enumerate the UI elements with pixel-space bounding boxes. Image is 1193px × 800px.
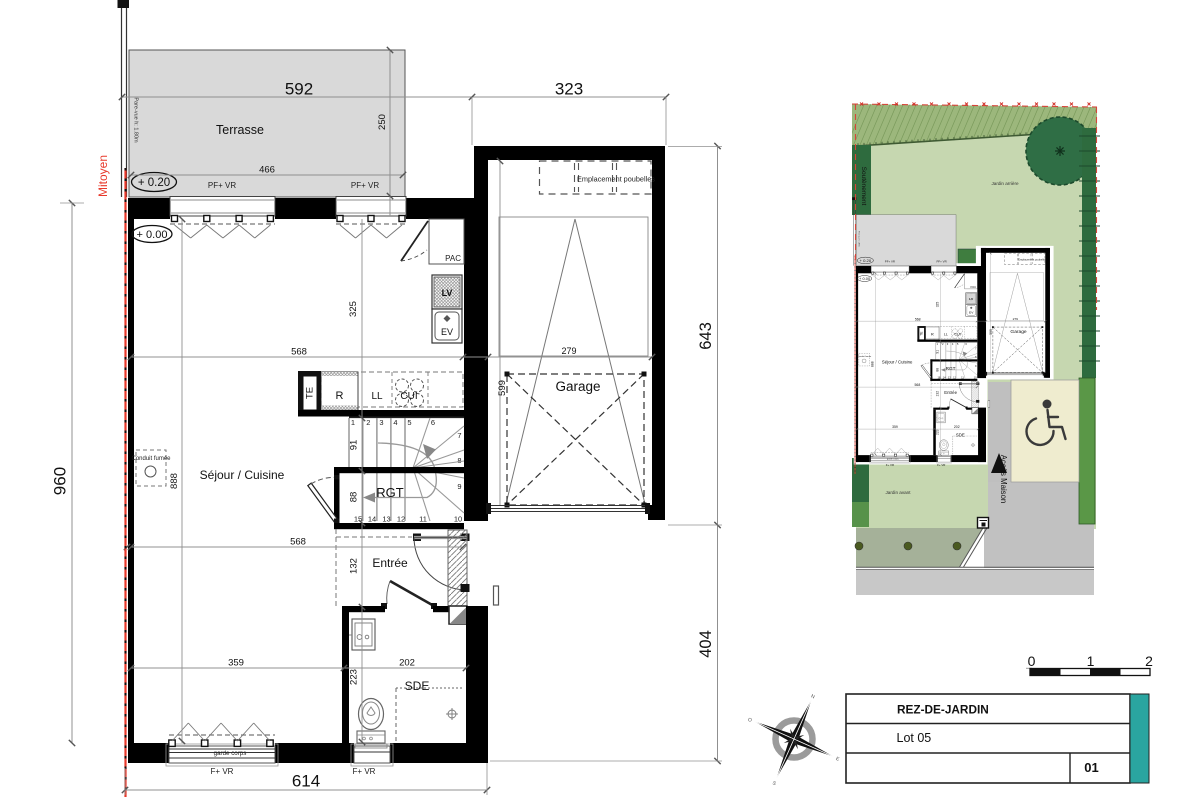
svg-text:6: 6 (431, 418, 435, 427)
svg-text:REZ-DE-JARDIN: REZ-DE-JARDIN (897, 703, 989, 717)
svg-text:garde corps: garde corps (214, 750, 247, 757)
svg-text:3: 3 (379, 418, 383, 427)
svg-text:325: 325 (348, 301, 359, 317)
svg-text:Emplacement poubelles: Emplacement poubelles (577, 175, 655, 184)
svg-text:599: 599 (497, 380, 508, 396)
svg-text:132: 132 (349, 558, 360, 574)
svg-text:LV: LV (442, 288, 453, 298)
svg-text:2: 2 (1145, 653, 1153, 669)
svg-text:592: 592 (285, 80, 313, 99)
svg-text:R: R (336, 390, 344, 402)
svg-text:8: 8 (457, 456, 461, 465)
svg-text:250: 250 (377, 114, 388, 130)
svg-text:279: 279 (561, 346, 576, 356)
svg-text:466: 466 (259, 165, 275, 176)
svg-text:11: 11 (419, 515, 427, 524)
svg-text:14: 14 (368, 515, 376, 524)
svg-text:E: E (835, 756, 841, 763)
svg-text:F+ VR: F+ VR (211, 767, 234, 776)
svg-text:91: 91 (349, 440, 360, 451)
svg-text:01: 01 (1084, 760, 1098, 775)
svg-text:PF+ VR: PF+ VR (351, 181, 379, 190)
svg-text:N: N (810, 693, 816, 700)
svg-text:7: 7 (457, 431, 461, 440)
svg-text:TE: TE (305, 387, 316, 399)
svg-text:13: 13 (382, 515, 390, 524)
svg-text:5: 5 (407, 418, 411, 427)
svg-text:Lot 05: Lot 05 (897, 731, 932, 745)
svg-text:404: 404 (697, 630, 715, 658)
svg-text:4: 4 (393, 418, 397, 427)
svg-text:PAC: PAC (445, 254, 461, 263)
svg-text:643: 643 (697, 322, 715, 350)
svg-text:9: 9 (457, 482, 461, 491)
svg-text:EV: EV (441, 327, 453, 337)
svg-text:223: 223 (349, 669, 360, 685)
svg-text:1: 1 (351, 418, 355, 427)
svg-text:323: 323 (555, 80, 583, 99)
svg-text:88: 88 (349, 492, 360, 503)
svg-text:614: 614 (292, 772, 320, 791)
svg-text:568: 568 (291, 347, 307, 358)
svg-text:Garage: Garage (555, 379, 600, 394)
svg-text:568: 568 (290, 537, 306, 548)
svg-text:Accès Maison: Accès Maison (999, 455, 1008, 504)
svg-text:Conduit fumée: Conduit fumée (131, 456, 171, 462)
svg-text:PF+ VR: PF+ VR (208, 181, 236, 190)
svg-text:359: 359 (228, 658, 244, 669)
svg-text:S: S (771, 780, 777, 787)
svg-text:RGT: RGT (376, 485, 404, 500)
svg-text:0: 0 (1028, 653, 1036, 669)
svg-text:10: 10 (454, 515, 462, 524)
svg-text:SDE: SDE (405, 679, 430, 693)
svg-text:F+ VR: F+ VR (353, 767, 376, 776)
svg-text:12: 12 (397, 515, 405, 524)
svg-text:Jardin avant: Jardin avant (885, 490, 911, 495)
svg-text:960: 960 (51, 467, 70, 495)
svg-text:LL: LL (371, 391, 383, 402)
svg-text:+ 0.00: + 0.00 (137, 229, 168, 241)
svg-text:1: 1 (1087, 653, 1095, 669)
svg-text:+ 0.20: + 0.20 (138, 177, 170, 189)
svg-text:Pare-vue h: 1.80m: Pare-vue h: 1.80m (133, 97, 139, 143)
svg-text:202: 202 (399, 658, 415, 669)
svg-text:Mitoyen: Mitoyen (96, 155, 110, 197)
svg-text:Entrée: Entrée (372, 556, 408, 570)
svg-text:Jardin arrière: Jardin arrière (991, 181, 1019, 186)
svg-text:Terrasse: Terrasse (216, 123, 264, 137)
svg-text:Séjour / Cuisine: Séjour / Cuisine (200, 468, 285, 482)
svg-text:CUI: CUI (400, 391, 417, 402)
svg-text:2: 2 (366, 418, 370, 427)
svg-text:888: 888 (169, 473, 180, 489)
svg-text:Soutènement: Soutènement (860, 167, 867, 206)
svg-text:O: O (747, 717, 753, 724)
